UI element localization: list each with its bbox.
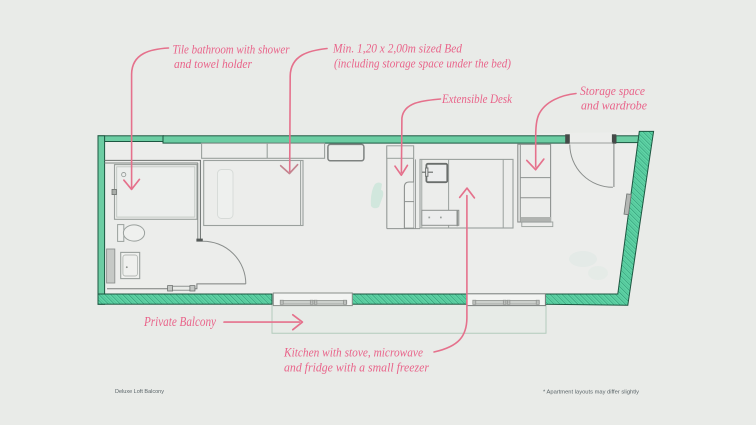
svg-text:Private Balcony: Private Balcony bbox=[143, 314, 216, 329]
svg-text:Tile bathroom with shower: Tile bathroom with shower bbox=[173, 42, 291, 57]
svg-text:Kitchen with stove, microwave: Kitchen with stove, microwave bbox=[283, 345, 423, 360]
svg-text:Extensible Desk: Extensible Desk bbox=[441, 91, 512, 106]
svg-text:Min. 1,20 x 2,00m sized Bed: Min. 1,20 x 2,00m sized Bed bbox=[332, 41, 462, 56]
svg-text:and wardrobe: and wardrobe bbox=[581, 98, 647, 113]
svg-text:Storage space: Storage space bbox=[580, 83, 645, 98]
svg-text:and towel holder: and towel holder bbox=[174, 56, 253, 71]
svg-text:Deluxe Loft Balcony: Deluxe Loft Balcony bbox=[115, 389, 164, 395]
svg-text:(including storage space under: (including storage space under the bed) bbox=[334, 56, 511, 71]
svg-text:and fridge with a small freeze: and fridge with a small freezer bbox=[284, 360, 430, 375]
svg-text:* Apartment layouts may differ: * Apartment layouts may differ slightly bbox=[543, 390, 639, 396]
